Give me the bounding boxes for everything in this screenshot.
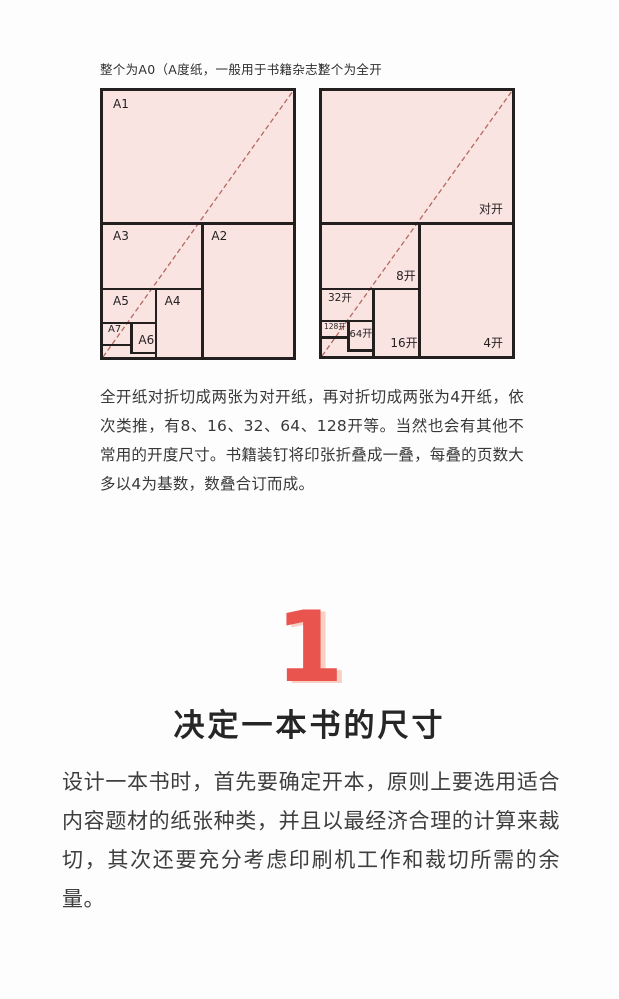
section-title: 决定一本书的尺寸 <box>0 700 619 745</box>
cell-label-8kai: 8开 <box>396 270 416 282</box>
cell-label-a3: A3 <box>113 230 129 242</box>
a-series-paper-diagram: A1 A2 A3 A4 A5 A6 A7 <box>100 88 296 360</box>
divider-line <box>201 222 204 357</box>
divider-line <box>322 288 418 291</box>
cell-label-a6: A6 <box>138 334 154 346</box>
cell-label-4kai: 4开 <box>483 337 503 349</box>
divider-line <box>130 352 154 355</box>
divider-line <box>372 288 375 356</box>
figure-explanation-paragraph: 全开纸对折切成两张为对开纸，再对折切成两张为4开纸，依次类推，有8、16、32、… <box>100 383 524 499</box>
cell-label-32kai: 32开 <box>328 293 352 304</box>
divider-line <box>103 288 201 291</box>
divider-line <box>347 349 372 352</box>
cell-label-a5: A5 <box>113 295 129 307</box>
cell-label-a1: A1 <box>113 98 129 110</box>
page: 整个为A0（A度纸，一般用于书籍杂志） 整个为全开 A1 A2 A3 A4 A5… <box>0 0 619 999</box>
section-body-paragraph: 设计一本书时，首先要确定开本，原则上要选用适合内容题材的纸张种类，并且以最经济合… <box>62 763 560 919</box>
divider-line <box>155 288 158 357</box>
cell-label-a7: A7 <box>108 325 121 335</box>
cell-label-a2: A2 <box>211 230 227 242</box>
left-diagram-caption: 整个为A0（A度纸，一般用于书籍杂志） <box>100 59 331 78</box>
divider-line <box>418 222 421 356</box>
cell-label-64kai: 64开 <box>350 330 373 340</box>
kai-sheet-diagram: 对开 4开 8开 16开 32开 64开 128开 <box>319 88 515 359</box>
cell-label-a4: A4 <box>165 295 181 307</box>
section-number: 1 <box>0 597 619 700</box>
divider-line <box>130 322 133 352</box>
divider-line <box>103 344 130 347</box>
cell-label-duikai: 对开 <box>479 203 503 215</box>
cell-label-128kai: 128开 <box>324 323 346 331</box>
divider-line <box>322 336 347 339</box>
right-diagram-caption: 整个为全开 <box>318 59 382 78</box>
cell-label-16kai: 16开 <box>390 337 417 349</box>
divider-line <box>103 222 293 225</box>
